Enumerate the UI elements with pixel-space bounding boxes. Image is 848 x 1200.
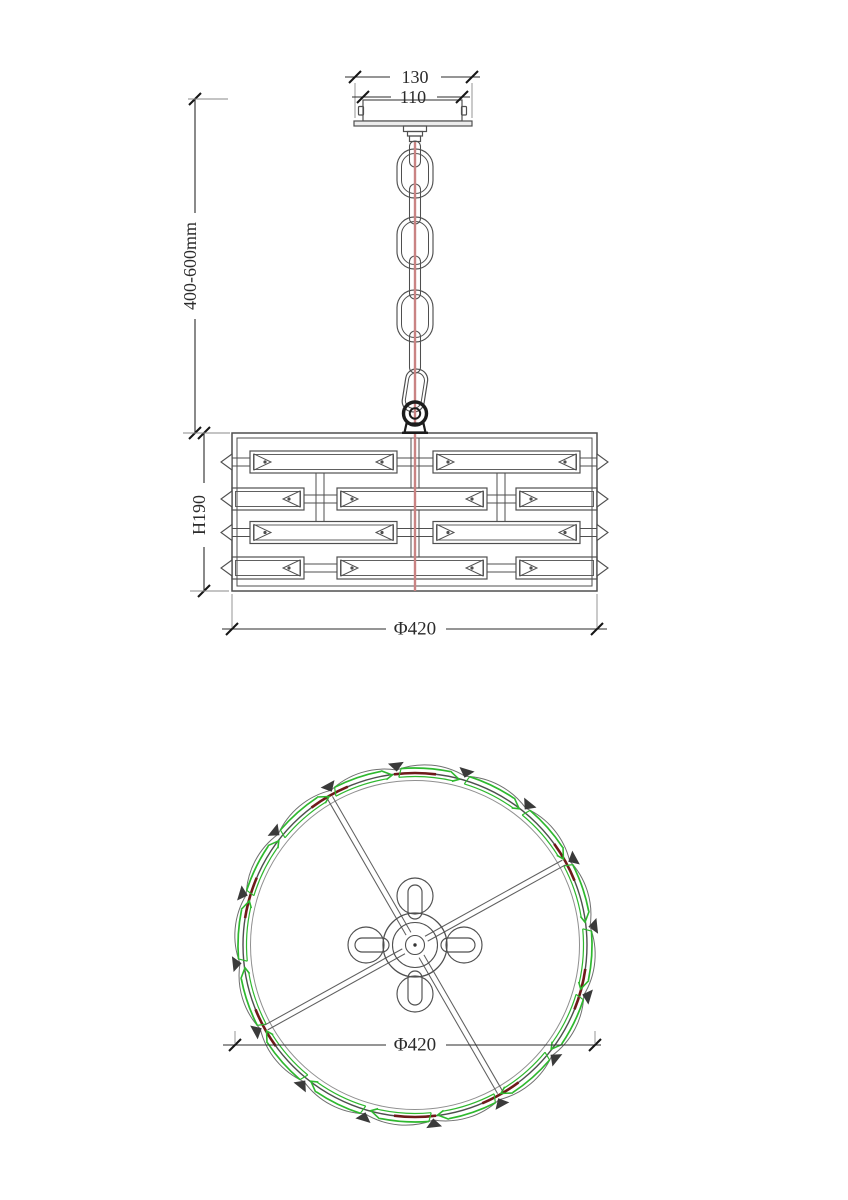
dim-canopy-width: 130 bbox=[402, 67, 429, 87]
side-elevation-view: 130 110 400-600mm H190 Φ420 bbox=[180, 67, 608, 640]
pendant-lamp-drawing: 130 110 400-600mm H190 Φ420 Φ420 bbox=[0, 0, 848, 1200]
dim-suspension-length: 400-600mm bbox=[180, 222, 200, 310]
technical-drawing-page: 130 110 400-600mm H190 Φ420 Φ420 bbox=[0, 0, 848, 1200]
dim-shade-diameter-plan: Φ420 bbox=[394, 1035, 436, 1056]
dim-shade-height: H190 bbox=[189, 495, 209, 535]
center-hub-lamp-sockets bbox=[348, 878, 482, 1012]
dim-canopy-body-width: 110 bbox=[400, 87, 426, 107]
plan-view: Φ420 bbox=[223, 762, 601, 1127]
dim-shade-diameter-side: Φ420 bbox=[394, 619, 436, 640]
side-view-dimensions: 130 110 400-600mm H190 Φ420 bbox=[180, 67, 607, 640]
